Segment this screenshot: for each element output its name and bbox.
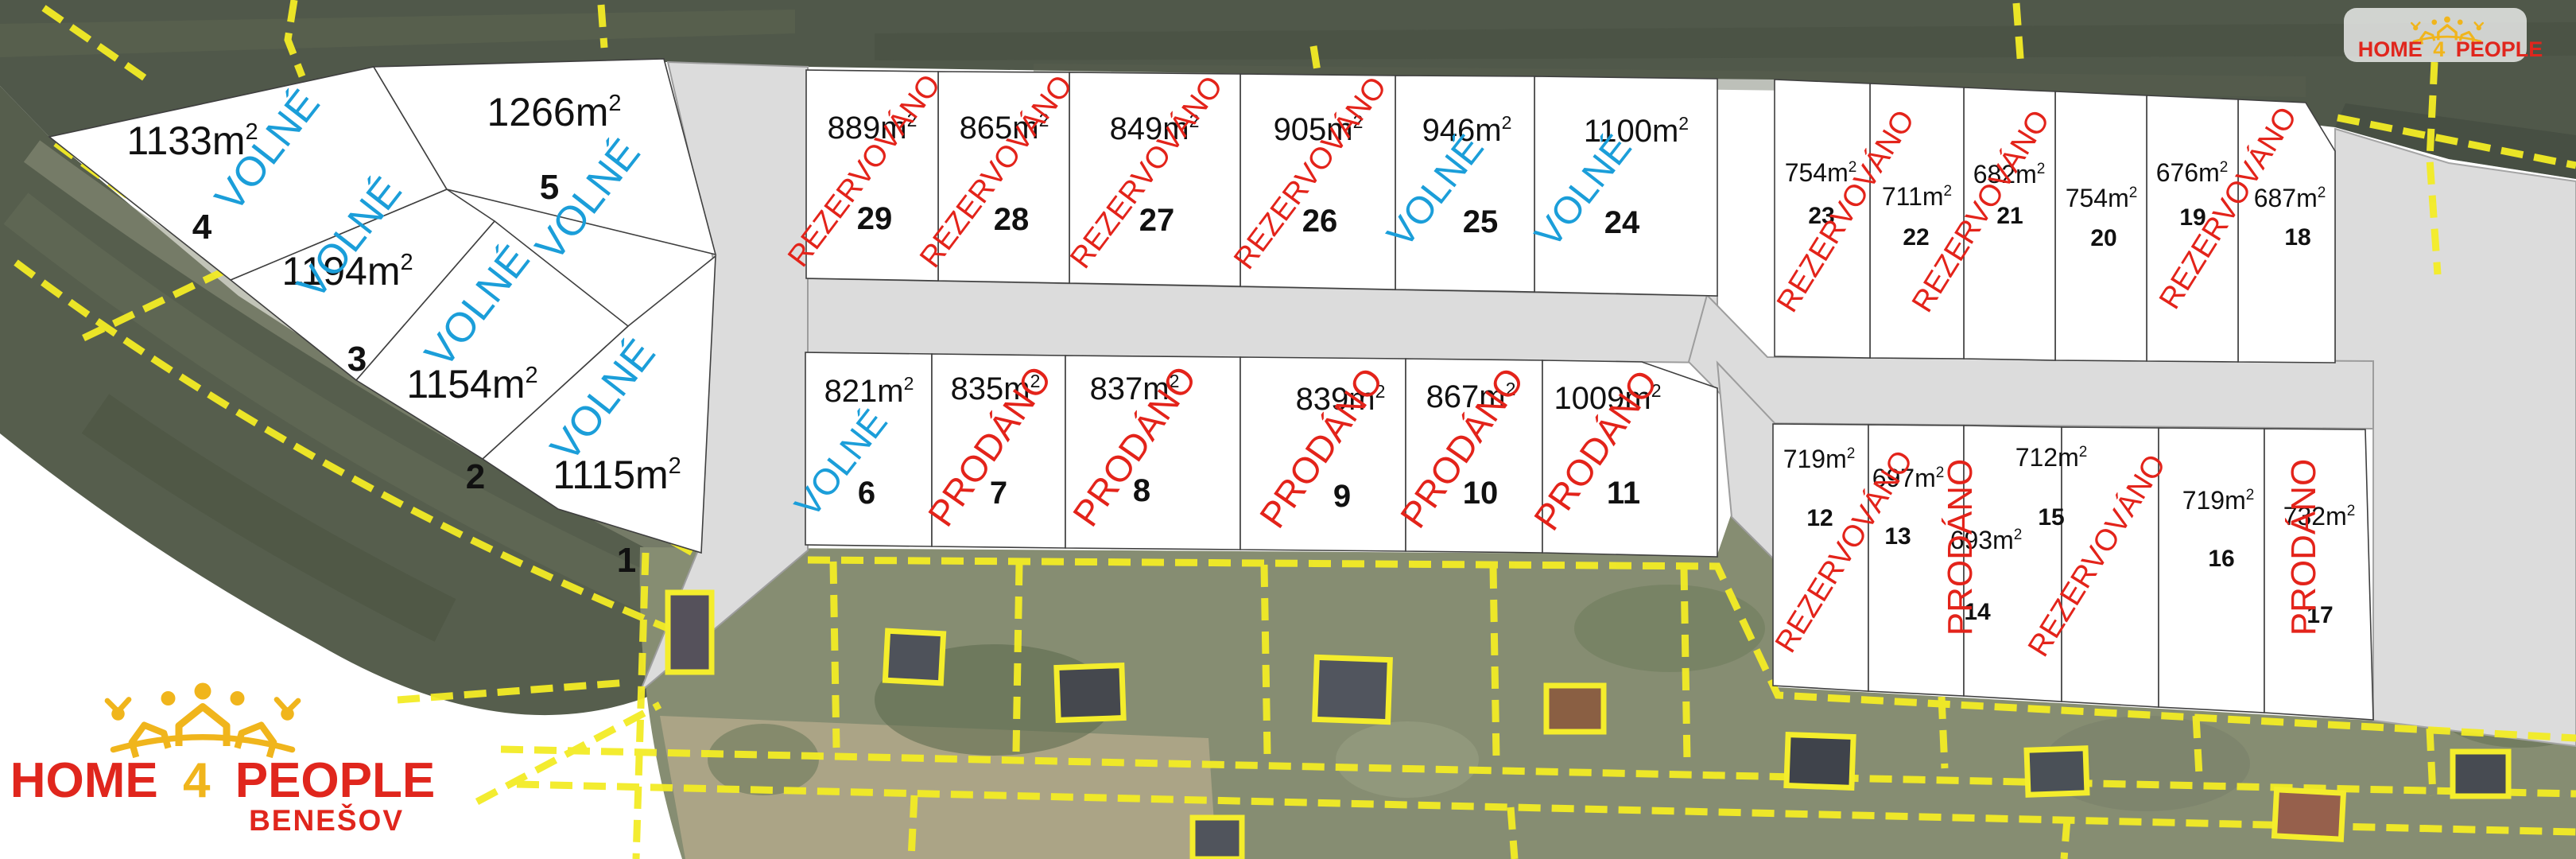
plot-16-area-label: 719m2 (2182, 486, 2255, 515)
house (1057, 666, 1123, 721)
plot-9-number: 9 (1333, 479, 1351, 514)
plot-3-number: 3 (347, 340, 367, 379)
plot-19-area-label: 676m2 (2156, 158, 2229, 187)
plot-13-number: 13 (1884, 523, 1911, 550)
plot-7-number: 7 (990, 476, 1007, 511)
plot-25-number: 25 (1463, 204, 1499, 239)
house (2453, 752, 2508, 796)
plot-11-number: 11 (1607, 476, 1640, 511)
plot-2-area-label: 1154m2 (406, 362, 537, 406)
main-logo-subtitle: BENEŠOV (249, 803, 404, 837)
plot-14-status: PRODÁNO (1941, 459, 1980, 636)
crown-icon (107, 683, 298, 758)
plot-20-area-label: 754m2 (2066, 184, 2138, 212)
plot-16-number: 16 (2208, 546, 2234, 572)
main-logo-text: HOME 4 PEOPLE (10, 753, 435, 808)
plot-18-number: 18 (2284, 224, 2310, 251)
plot-22-area-label: 711m2 (1882, 182, 1952, 211)
plot-29-number: 29 (857, 201, 893, 236)
house (668, 593, 712, 672)
plot-availability-map: HOME 4 PEOPLE 1115m2VOLNÉ11154m2VOLNÉ211… (0, 0, 2576, 859)
plot-12-area-label: 719m2 (1783, 445, 1856, 473)
plot-18-area-label: 687m2 (2254, 184, 2326, 212)
plot-15-area-label: 712m2 (2015, 443, 2088, 472)
plot-12-number: 12 (1806, 505, 1833, 531)
plot-6-number: 6 (858, 476, 875, 511)
house (1193, 818, 1242, 859)
house (2027, 748, 2087, 795)
plot-5-number: 5 (540, 168, 559, 207)
plot-10-number: 10 (1463, 476, 1499, 511)
house (1787, 735, 1853, 788)
plot-27-number: 27 (1139, 203, 1175, 238)
plot-5-area-label: 1266m2 (487, 90, 621, 134)
house (1546, 686, 1604, 732)
plot-22-number: 22 (1903, 224, 1929, 251)
plot-15-number: 15 (2038, 504, 2064, 531)
plot-24-number: 24 (1604, 205, 1640, 240)
plot-17-status: PRODÁNO (2284, 459, 2323, 636)
plot-1-number: 1 (617, 541, 636, 580)
house (1315, 657, 1391, 721)
plot-26-number: 26 (1302, 204, 1338, 239)
main-logo: HOME 4 PEOPLE BENEŠOV (10, 683, 435, 838)
plot-2-number: 2 (466, 457, 485, 496)
house (2275, 790, 2344, 839)
plot-28-number: 28 (994, 202, 1030, 237)
house (885, 631, 943, 683)
plot-6-area-label: 821m2 (824, 373, 914, 409)
plot-20-number: 20 (2090, 225, 2116, 251)
corner-logo: HOME 4 PEOPLE (2344, 8, 2543, 62)
map-canvas: HOME 4 PEOPLE 1115m2VOLNÉ11154m2VOLNÉ211… (0, 0, 2576, 859)
corner-logo-text: HOME 4 PEOPLE (2358, 37, 2543, 61)
plot-4-number: 4 (192, 208, 212, 247)
